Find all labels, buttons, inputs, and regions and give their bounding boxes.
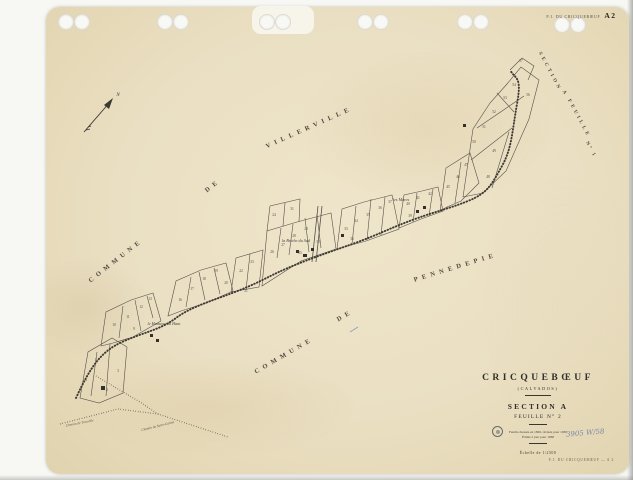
plate-footer-label: P.I. DU CRICQUEBŒUF — A 2 [498, 458, 614, 462]
ink-stamp [492, 426, 503, 437]
parcel-number: 34 [354, 219, 358, 223]
parcel-number: 51 [482, 125, 486, 129]
parcel-number: 49 [492, 149, 496, 153]
parcel-number: 53 [503, 96, 507, 100]
parcel-number: 25 [298, 251, 302, 255]
neighbor-area-label: COMMUNE [87, 237, 144, 284]
parcel-number: 24 [272, 213, 276, 217]
parcel-number: 21 [244, 289, 248, 293]
parcel-number: 39 [408, 214, 412, 218]
neighbor-area-label: PENNEDEPIE [413, 252, 498, 284]
parcel-number: 28 [292, 234, 296, 238]
parcel-number: 9 [133, 327, 135, 331]
parcel-number: 35 [366, 213, 370, 217]
parcel-number: 33 [344, 227, 348, 231]
parcel-number: 26 [270, 250, 274, 254]
parcel-number: 32 [350, 237, 354, 241]
parcel-number: 48 [486, 175, 490, 179]
neighbor-area-label: FEUILLE [566, 99, 591, 139]
parcel-number: 36 [378, 206, 382, 210]
parcel-number: 4 [85, 378, 87, 382]
parcel-number: 10 [112, 323, 116, 327]
section-label: SECTION A [477, 402, 599, 411]
department-label: (CALVADOS) [477, 386, 599, 391]
north-arrow [84, 98, 113, 132]
parcel-number: 31 [290, 207, 294, 211]
parcel-number: 29 [304, 227, 308, 231]
parcel-number: 56 [526, 93, 530, 97]
parcel-number: 22 [239, 269, 243, 273]
neighbor-area-label: A [561, 90, 569, 98]
plate-corner-label: P.I. DU CRICQUEBŒUF A 2 [505, 11, 615, 20]
parcel-number: 45 [446, 185, 450, 189]
parcel-number: 54 [512, 83, 516, 87]
parcel-number: 50 [472, 140, 476, 144]
parcel-number: 40 [406, 202, 410, 206]
parcel-number: 19 [214, 269, 218, 273]
parcel-number: 30 [316, 240, 320, 244]
parcel-number: 12 [139, 305, 143, 309]
commune-title: CRICQUEBŒUF [477, 373, 599, 383]
parcel-number: 17 [190, 287, 194, 291]
blue-pencil-mark [350, 327, 358, 332]
parcel-number: 16 [178, 298, 182, 302]
neighbor-area-label: N° 1 [584, 141, 597, 159]
parcel-number: 2 [106, 388, 108, 392]
neighbor-area-label: COMMUNE [253, 336, 315, 376]
divider-rule [525, 395, 551, 396]
scanned-cadastral-plan: COMMUNEDEVILLERVILLECOMMUNEDEPENNEDEPIES… [0, 0, 633, 480]
plate-prefix: P.I. DU CRICQUEBŒUF [546, 15, 600, 19]
north-label: N [115, 93, 120, 98]
neighbor-area-label: VILLERVILLE [265, 105, 354, 150]
parcel-number: 57 [519, 59, 523, 63]
plate-code: A 2 [604, 11, 615, 20]
parcel-number: 23 [250, 260, 254, 264]
road-label: Chemin de Saint-Gatien [141, 420, 175, 432]
parcel-number: 47 [464, 163, 468, 167]
parcel-number: 52 [492, 110, 496, 114]
divider-rule [529, 424, 547, 425]
road-label: Chemin de Trouville [65, 418, 94, 427]
divider-rule [529, 443, 547, 444]
building-marks [101, 124, 466, 390]
title-block: CRICQUEBŒUF (CALVADOS) SECTION A FEUILLE… [477, 373, 599, 455]
parcel-number: 13 [148, 297, 152, 301]
lieu-dit-label: la Briche du Sud [282, 238, 311, 243]
parcel-number: 27 [281, 243, 285, 247]
parcel-number: 46 [456, 175, 460, 179]
parcel-number: 18 [202, 277, 206, 281]
parcel-boundaries [80, 58, 539, 403]
parcel-number: 3 [117, 369, 119, 373]
parcel-number: 11 [126, 315, 130, 319]
parcel-number: 42 [428, 192, 432, 196]
parcel-number: 20 [224, 281, 228, 285]
neighbor-area-label: DE [336, 308, 355, 323]
parcel-number: 37 [388, 200, 392, 204]
neighbor-area-label: SECTION [537, 51, 562, 92]
parcel-number: 41 [416, 196, 420, 200]
neighbor-area-label: DE [204, 178, 223, 195]
parcel-number: 5 [95, 358, 97, 362]
parcel-number: 6 [109, 347, 111, 351]
sheet-number-label: FEUILLE N° 2 [477, 414, 599, 420]
lieu-dit-label: le Hameau du Haut [148, 321, 182, 326]
scale-label: Échelle de 1/2500 [477, 451, 599, 455]
